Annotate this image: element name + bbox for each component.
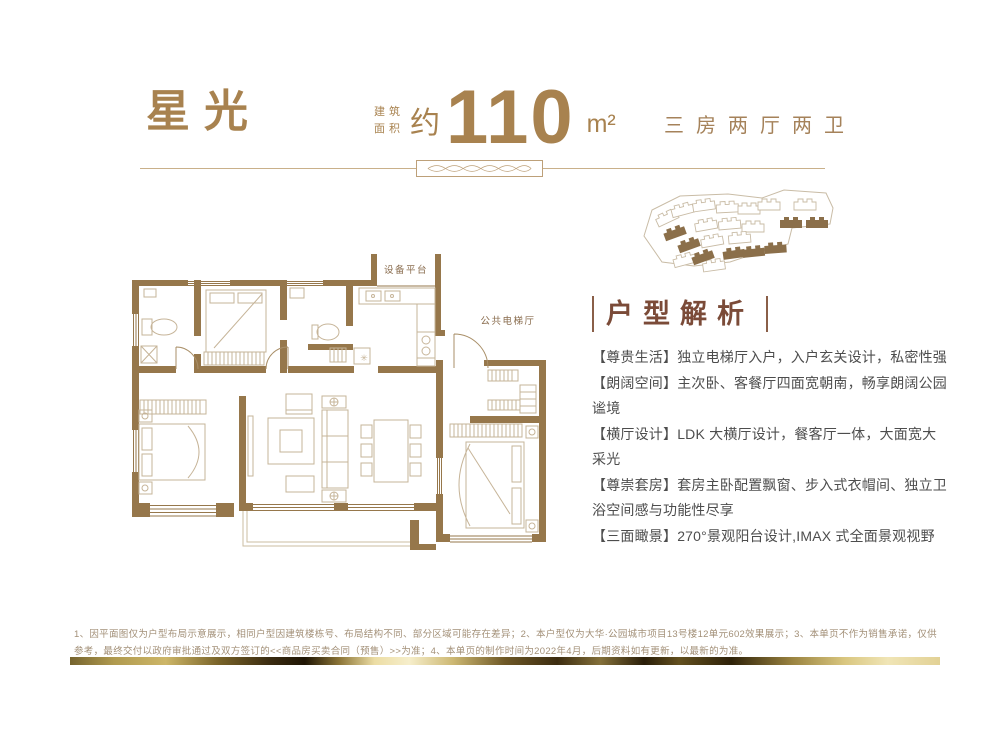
- area-group: 建筑 面积 约 110 m²: [374, 82, 616, 154]
- analysis-items: 【尊贵生活】独立电梯厅入户，入户玄关设计，私密性强 【朗阔空间】主次卧、客餐厅四…: [592, 345, 948, 549]
- divider-ornament: [416, 160, 543, 177]
- analysis-section: 户型解析 【尊贵生活】独立电梯厅入户，入户玄关设计，私密性强 【朗阔空间】主次卧…: [592, 296, 948, 549]
- floorplan-labels: 设备平台 公共电梯厅 ✳: [360, 264, 535, 363]
- balcony-railing: [243, 511, 410, 546]
- corridor-wardrobes: [488, 370, 536, 413]
- bedroom1-furniture: [139, 400, 206, 494]
- analysis-heading: 户型解析: [592, 296, 768, 332]
- analysis-item: 【尊崇套房】套房主卧配置飘窗、步入式衣帽间、独立卫浴空间感与功能性尽享: [592, 473, 948, 524]
- area-label-line2: 面积: [374, 121, 404, 138]
- analysis-item: 【横厅设计】LDK 大横厅设计，餐客厅一体，大面宽大采光: [592, 422, 948, 473]
- bathroom2-fixtures: [290, 288, 339, 340]
- entry-marker-icon: ✳: [360, 353, 368, 363]
- area-unit: m²: [587, 110, 616, 139]
- area-label: 建筑 面积: [374, 104, 404, 137]
- gold-decorative-bar: [70, 657, 940, 665]
- elevator-hall-label: 公共电梯厅: [480, 315, 535, 327]
- disclaimer-text: 1、因平面图仅为户型布局示意展示，相同户型因建筑楼栋号、布局结构不同、部分区域可…: [74, 627, 940, 660]
- dining-furniture: [361, 420, 421, 482]
- analysis-item: 【朗阔空间】主次卧、客餐厅四面宽朝南，畅享朗阔公园谧境: [592, 371, 948, 422]
- poster-page: 星光 建筑 面积 约 110 m² 三房两厅两卫: [0, 0, 1000, 750]
- floorplan-windows: [134, 282, 533, 543]
- analysis-item: 【三面瞰景】270°景观阳台设计,IMAX 式全面景观视野: [592, 524, 948, 549]
- bathroom1-fixtures: [141, 289, 177, 363]
- equipment-platform-label: 设备平台: [384, 264, 428, 276]
- master-bedroom-furniture: [450, 424, 538, 532]
- area-value: 110: [446, 82, 575, 154]
- floorplan-drawing: 设备平台 公共电梯厅 ✳: [118, 248, 570, 570]
- siteplan-drawing: [636, 186, 848, 284]
- layout-spec: 三房两厅两卫: [664, 109, 856, 138]
- analysis-item: 【尊贵生活】独立电梯厅入户，入户玄关设计，私密性强: [592, 345, 948, 370]
- page-title: 星光: [146, 90, 262, 134]
- living-room-furniture: [248, 394, 348, 502]
- foyer-cabinet: [330, 348, 346, 362]
- bedroom2-furniture: [204, 290, 266, 365]
- area-label-line1: 建筑: [374, 104, 404, 121]
- area-approx: 约: [410, 98, 440, 142]
- wave-ornament-icon: [417, 161, 542, 176]
